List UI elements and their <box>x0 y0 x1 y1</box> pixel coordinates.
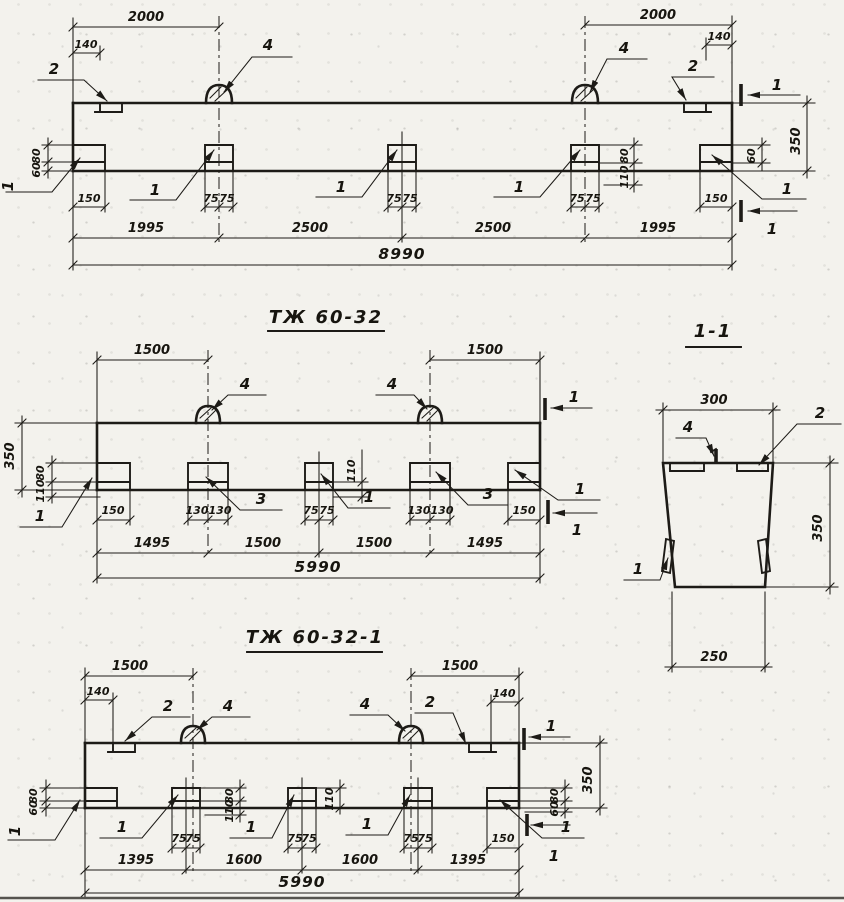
middle-view-title: ТЖ 60-32 <box>269 307 383 328</box>
section-mark-top: 1 <box>569 388 579 406</box>
bottom-view: ТЖ 60-32-1 <box>6 627 607 898</box>
dim-seg3: 1600 <box>342 853 378 868</box>
top-view-centerlines <box>219 16 585 242</box>
leader-detail1-end-left: 1 <box>0 181 17 191</box>
leader-detail1-stud4: 1 <box>514 178 524 196</box>
section-side-plates <box>662 539 770 573</box>
dim-stud4-left-half: 75 <box>569 192 585 205</box>
dim-total-length: 5990 <box>294 558 341 576</box>
dim-seg4: 1995 <box>640 221 676 236</box>
top-view-top-plates <box>95 103 711 112</box>
leader-detail4-right: 4 <box>618 39 629 57</box>
leader-detail4-left: 4 <box>262 36 273 54</box>
leader-detail1: 1 <box>633 560 643 578</box>
dim-end-plate-left: 150 <box>78 192 101 205</box>
dim-seg2: 1500 <box>245 536 281 551</box>
leader-detail1-end-right: 1 <box>575 480 585 498</box>
top-view: 2000 2000 140 140 2 2 4 4 1 1 80 60 1 15… <box>0 8 815 270</box>
dim-end-offset-left: 140 <box>87 685 110 698</box>
dim-beam-height: 350 <box>3 442 18 469</box>
bottom-view-title: ТЖ 60-32-1 <box>246 627 384 648</box>
section-mark-top: 1 <box>546 717 556 735</box>
dim-end-offset-right: 140 <box>493 687 516 700</box>
dim-plate-height: 80 <box>34 465 47 481</box>
dim-end-plate-right: 150 <box>492 832 515 845</box>
dim-span-left: 2000 <box>128 10 164 25</box>
section-dimension-lines <box>656 403 834 672</box>
middle-view: ТЖ 60-32 <box>3 307 600 583</box>
dim-stud2-right-half: 75 <box>185 832 201 845</box>
dim-stud2-gap: 110 <box>223 799 236 822</box>
bottom-view-lifting-loops <box>181 726 423 743</box>
dim-beam-height: 350 <box>789 127 804 154</box>
dim-span-right: 1500 <box>467 343 503 358</box>
dim-stud3-right-half: 75 <box>319 504 335 517</box>
dim-seg2: 2500 <box>292 221 328 236</box>
dim-stud2-left-half: 130 <box>186 504 209 517</box>
dim-stud4-left-half: 130 <box>408 504 431 517</box>
dim-stud2-right-half: 130 <box>209 504 232 517</box>
section-dim-ticks <box>659 406 834 671</box>
section-mark-top: 1 <box>772 76 782 94</box>
dim-seg1: 1995 <box>128 221 164 236</box>
dim-seg1: 1395 <box>118 853 154 868</box>
dim-seg1: 1495 <box>134 536 170 551</box>
dim-seg3: 2500 <box>475 221 511 236</box>
dim-plate-gap: 110 <box>34 479 47 502</box>
middle-view-texts: 1500 1500 4 4 1 1 350 80 110 1 150 130 1… <box>3 343 585 576</box>
dim-plate-gap-left: 60 <box>27 800 40 816</box>
section-top-plates <box>670 465 768 471</box>
section-mark-bottom: 1 <box>572 521 582 539</box>
leader-detail1-stud3: 1 <box>364 488 374 506</box>
dim-height: 350 <box>811 514 826 541</box>
dim-seg2: 1600 <box>226 853 262 868</box>
dim-plate-gap-left: 60 <box>30 162 43 178</box>
dim-span-right: 1500 <box>442 659 478 674</box>
leader-detail1-stud2: 1 <box>150 181 160 199</box>
dim-stud3-gap: 110 <box>323 787 336 810</box>
leader-detail4-left: 4 <box>239 375 250 393</box>
leader-detail1-stud4: 1 <box>362 815 372 833</box>
leader-detail2-right: 2 <box>688 57 698 75</box>
dim-end-plate-right: 150 <box>513 504 536 517</box>
dim-beam-height: 350 <box>581 766 596 793</box>
dim-end-gap-right: 60 <box>745 148 758 164</box>
bottom-view-leaders <box>8 713 584 840</box>
leader-detail3-stud2: 3 <box>256 490 266 508</box>
dim-stud3-left-half: 75 <box>303 504 319 517</box>
section-mark-bottom: 1 <box>767 220 777 238</box>
dim-span-left: 1500 <box>134 343 170 358</box>
dim-stud2-right-half: 75 <box>219 192 235 205</box>
dim-seg4: 1395 <box>450 853 486 868</box>
section-title: 1-1 <box>694 321 733 342</box>
dim-stud3-right-half: 75 <box>402 192 418 205</box>
top-view-leaders <box>6 57 806 200</box>
dim-stud3-left-half: 75 <box>386 192 402 205</box>
leader-detail2: 2 <box>815 404 825 422</box>
leader-detail1-stud3: 1 <box>246 818 256 836</box>
section-mark-bottom: 1 <box>549 847 559 865</box>
dim-total-length: 5990 <box>278 873 325 891</box>
leader-detail4-left: 4 <box>222 697 233 715</box>
section-view: 1-1 300 350 250 <box>624 321 841 672</box>
leader-detail1-end-right: 1 <box>561 818 571 836</box>
dim-total-length: 8990 <box>378 245 425 263</box>
dim-stud2-left-half: 75 <box>203 192 219 205</box>
dim-bottom-width: 250 <box>700 650 727 665</box>
dim-stud-gap: 110 <box>345 459 358 482</box>
leader-detail2-left: 2 <box>163 697 173 715</box>
leader-detail1-end-right: 1 <box>782 180 792 198</box>
dim-stud-gap: 110 <box>618 165 631 188</box>
section-extension-lines <box>765 463 838 587</box>
bottom-view-texts: 1500 1500 140 140 2 2 4 4 1 1 80 60 1 80… <box>6 659 596 891</box>
dim-span-right: 2000 <box>640 8 676 23</box>
dim-plate-height-left: 80 <box>30 148 43 164</box>
drawing-sheet: 2000 2000 140 140 2 2 4 4 1 1 80 60 1 15… <box>0 0 844 902</box>
dim-stud-height: 80 <box>618 148 631 164</box>
leader-detail4-right: 4 <box>359 695 370 713</box>
top-view-lifting-loops <box>206 85 598 103</box>
leader-detail4: 4 <box>682 418 693 436</box>
dim-stud4-right-half: 75 <box>417 832 433 845</box>
dim-end-offset-right: 140 <box>708 30 731 43</box>
middle-view-section-marks <box>545 398 597 524</box>
dim-end-plate-left: 150 <box>102 504 125 517</box>
beam-drawing-svg: 2000 2000 140 140 2 2 4 4 1 1 80 60 1 15… <box>0 0 844 902</box>
leader-detail2-right: 2 <box>425 693 435 711</box>
bottom-view-top-plates <box>108 743 496 752</box>
middle-view-lifting-loops <box>196 406 442 423</box>
section-texts: 300 350 250 4 2 1 <box>633 393 826 665</box>
dim-stud4-right-half: 75 <box>585 192 601 205</box>
leader-detail1-end-left: 1 <box>35 507 45 525</box>
dim-seg3: 1500 <box>356 536 392 551</box>
dim-span-left: 1500 <box>112 659 148 674</box>
leader-detail1-end-left: 1 <box>6 826 24 836</box>
dim-plate-gap-right: 60 <box>548 801 561 817</box>
dim-end-plate-right: 150 <box>705 192 728 205</box>
dim-end-offset-left: 140 <box>75 38 98 51</box>
dim-stud3-right-half: 75 <box>301 832 317 845</box>
leader-detail1-stud3: 1 <box>336 178 346 196</box>
leader-detail4-right: 4 <box>386 375 397 393</box>
dim-seg4: 1495 <box>467 536 503 551</box>
dim-stud4-right-half: 130 <box>431 504 454 517</box>
dim-plate-height-right: 80 <box>548 788 561 804</box>
leader-detail3-stud4: 3 <box>483 485 493 503</box>
leader-detail2-left: 2 <box>49 60 59 78</box>
section-leaders <box>624 424 841 580</box>
dim-top-width: 300 <box>700 393 727 408</box>
section-outline <box>663 463 773 587</box>
leader-detail1-stud2: 1 <box>117 818 127 836</box>
